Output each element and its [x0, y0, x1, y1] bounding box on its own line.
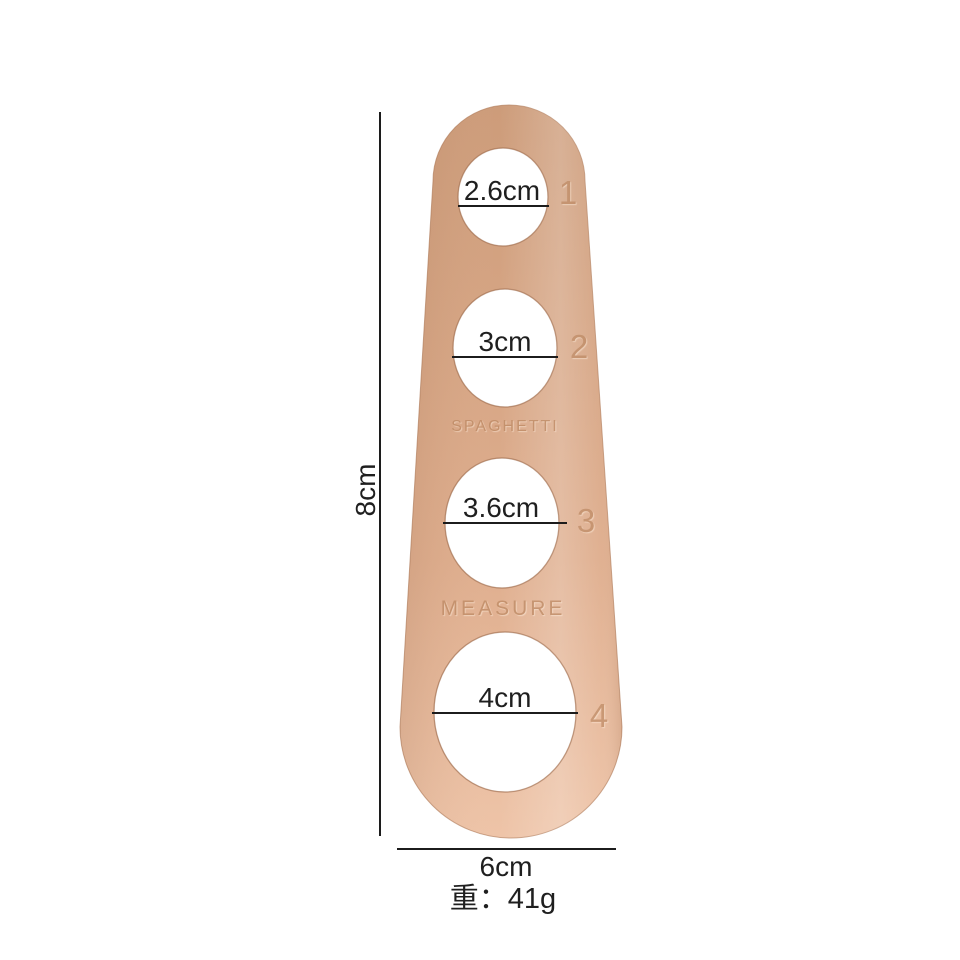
engraved-number-2: 2	[570, 328, 588, 365]
engraved-number-4: 4	[590, 697, 608, 734]
weight-label: 重：41g	[450, 882, 556, 915]
hole-4-diameter-label: 4cm	[479, 682, 532, 713]
engraved-word-spaghetti: SPAGHETTI	[451, 418, 559, 435]
spaghetti-measurer-figure: SPAGHETTI MEASURE 1 2 3 4 2.6cm 3cm 3.6c…	[0, 0, 960, 960]
hole-3-diameter-label: 3.6cm	[463, 492, 539, 523]
engraved-number-3: 3	[577, 502, 595, 539]
hole-2-diameter-label: 3cm	[479, 326, 532, 357]
engraved-number-1: 1	[559, 174, 577, 211]
height-dimension-label: 8cm	[350, 464, 381, 517]
engraved-word-measure: MEASURE	[441, 597, 566, 620]
product-diagram-canvas: SPAGHETTI MEASURE 1 2 3 4 2.6cm 3cm 3.6c…	[0, 0, 960, 960]
width-dimension-label: 6cm	[480, 851, 533, 882]
hole-1-diameter-label: 2.6cm	[464, 175, 540, 206]
measurer-body-sheen	[400, 105, 622, 838]
